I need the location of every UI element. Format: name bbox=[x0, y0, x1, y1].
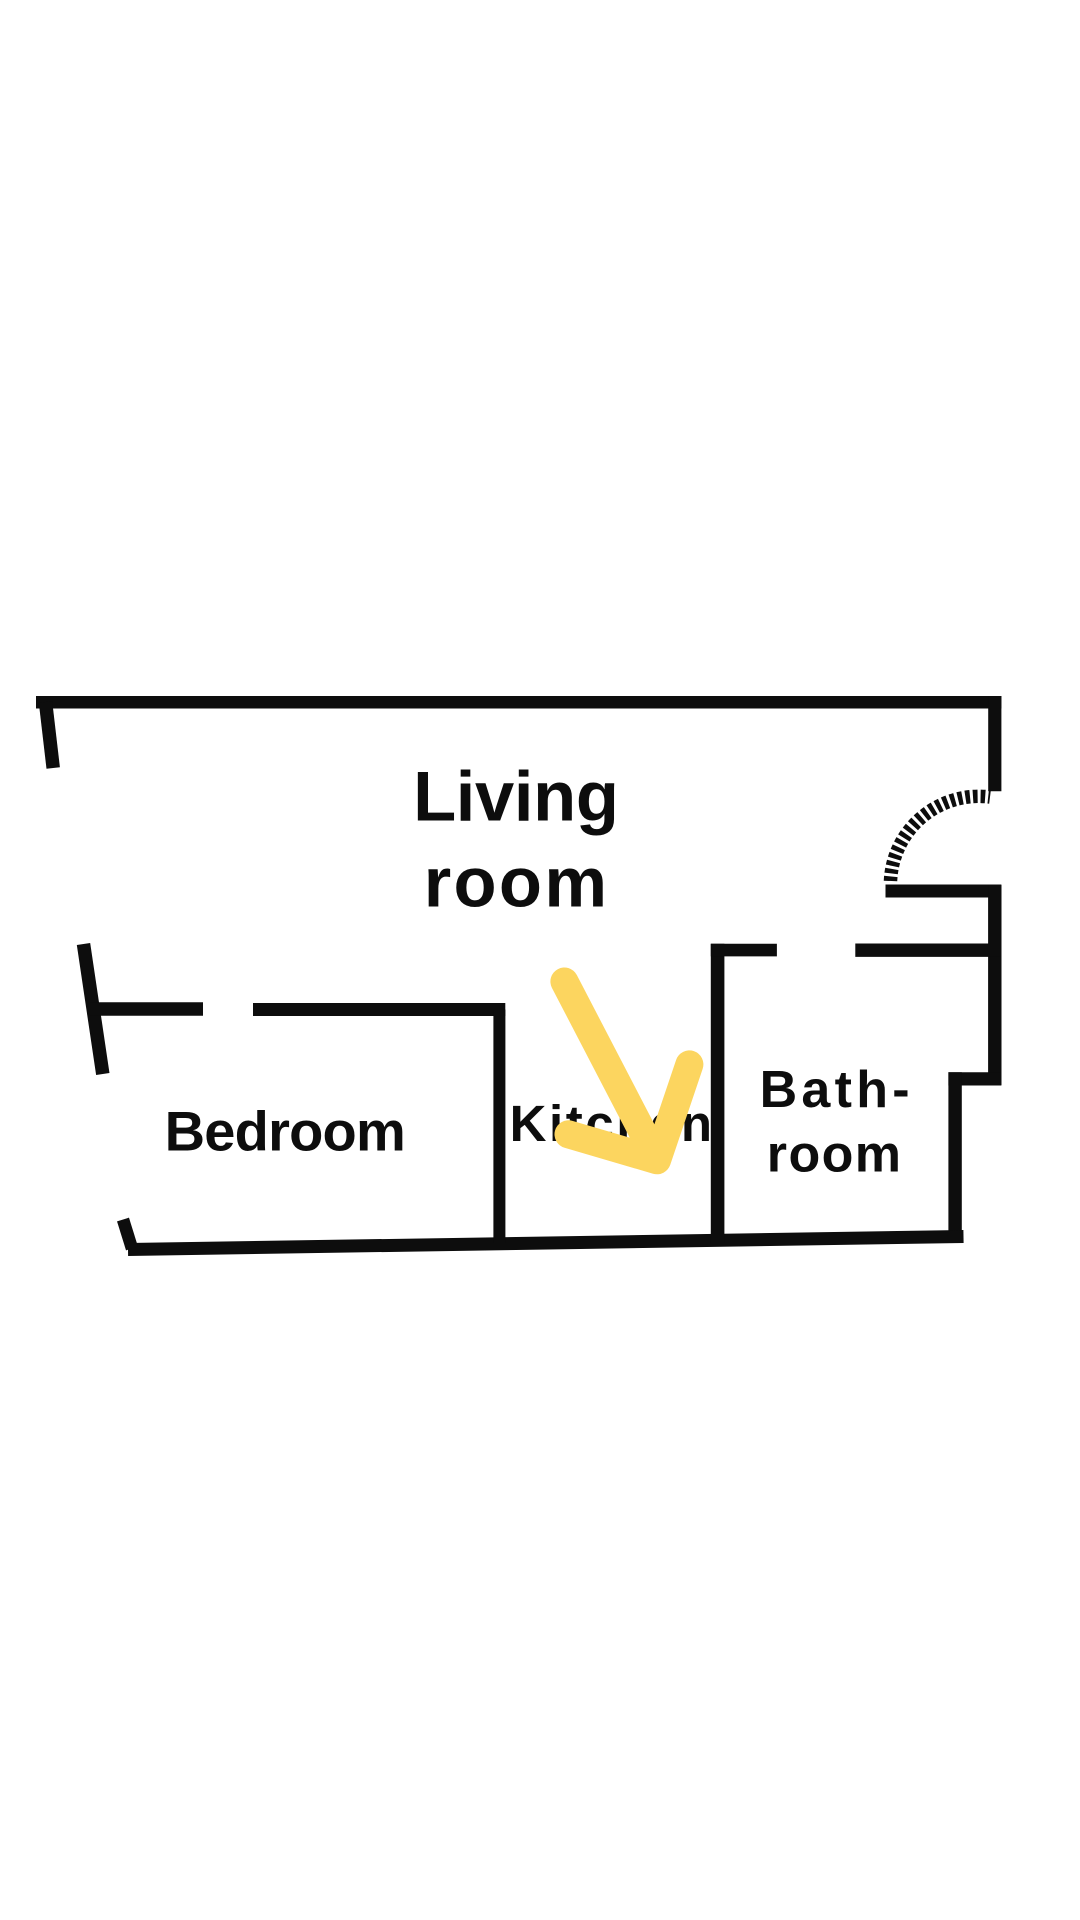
svg-text:Bedroom: Bedroom bbox=[165, 1099, 406, 1162]
svg-text:room: room bbox=[424, 843, 607, 922]
svg-text:Bath-: Bath- bbox=[760, 1061, 910, 1119]
svg-text:Living: Living bbox=[413, 757, 619, 836]
svg-text:room: room bbox=[767, 1125, 901, 1183]
